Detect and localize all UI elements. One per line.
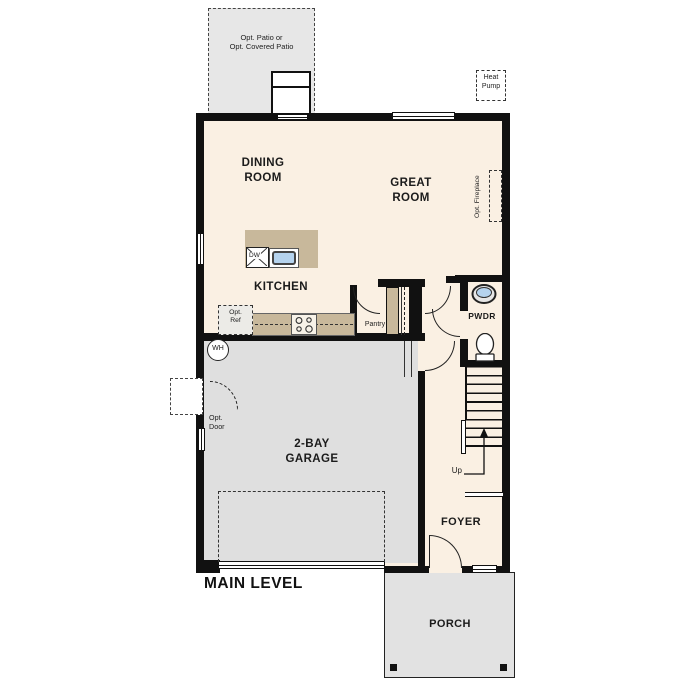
heat-pump-unit: Heat Pump bbox=[476, 70, 506, 101]
wall-closet-right bbox=[409, 279, 422, 335]
heat-pump-label-line2: Pump bbox=[482, 83, 500, 90]
wall-powder-left-upper bbox=[460, 275, 468, 311]
cooktop bbox=[291, 314, 317, 335]
dining-room-label-line1: DINING bbox=[242, 157, 285, 169]
opt-ref-label-line1: Opt. bbox=[229, 309, 242, 316]
optional-door-label: Opt. Door bbox=[209, 413, 239, 431]
chimney-divider bbox=[273, 86, 309, 88]
heat-pump-label: Heat Pump bbox=[477, 74, 505, 92]
closet-shelf bbox=[386, 287, 399, 335]
closet-bifold-dashed bbox=[404, 287, 405, 335]
floor-plan: Opt. Patio or Opt. Covered Patio Heat Pu… bbox=[0, 0, 687, 687]
window-dining bbox=[197, 233, 204, 265]
garage-label-line1: 2-BAY bbox=[294, 438, 329, 450]
kitchen-label: KITCHEN bbox=[236, 280, 326, 295]
heat-pump-label-line1: Heat bbox=[484, 74, 499, 81]
garage-label-line2: GARAGE bbox=[286, 453, 339, 465]
window-foyer-sidelite bbox=[472, 565, 497, 573]
garage-entry-opening bbox=[418, 341, 425, 371]
optional-patio-label-line1: Opt. Patio or bbox=[240, 33, 282, 42]
toilet-icon bbox=[474, 333, 496, 362]
opt-ref-label-line2: Ref bbox=[230, 317, 241, 324]
great-room-label: GREAT ROOM bbox=[366, 176, 456, 206]
opt-door-label-line1: Opt. bbox=[209, 413, 223, 422]
dining-room-label-line2: ROOM bbox=[244, 172, 281, 184]
optional-door-outline bbox=[170, 378, 203, 415]
optional-refrigerator-label: Opt. Ref bbox=[219, 309, 252, 326]
optional-patio-label: Opt. Patio or Opt. Covered Patio bbox=[208, 33, 315, 52]
water-heater: WH bbox=[207, 339, 229, 361]
dining-room-label: DINING ROOM bbox=[218, 156, 308, 186]
powder-sink-icon bbox=[471, 284, 497, 304]
closet-track-line bbox=[401, 287, 402, 335]
dishwasher-box: DW bbox=[246, 247, 269, 268]
opt-door-label-line2: Door bbox=[209, 422, 225, 431]
optional-fireplace-label: Opt. Fireplace bbox=[474, 164, 486, 230]
stairs-landing-edge bbox=[465, 492, 503, 497]
garage-nook-line-right bbox=[411, 341, 412, 377]
window-great-room bbox=[392, 112, 455, 120]
porch-label: PORCH bbox=[405, 617, 495, 632]
optional-patio-label-line2: Opt. Covered Patio bbox=[230, 42, 294, 51]
garage-door-swing-outline bbox=[218, 491, 385, 562]
porch-post-left bbox=[390, 664, 397, 671]
island-sink-basin bbox=[272, 251, 296, 265]
garage-overhead-door bbox=[218, 561, 385, 569]
porch-post-right bbox=[500, 664, 507, 671]
chimney bbox=[271, 71, 311, 116]
window-garage bbox=[198, 428, 205, 451]
great-room-label-line1: GREAT bbox=[390, 177, 431, 189]
garage-label: 2-BAY GARAGE bbox=[267, 437, 357, 467]
wall-bottom-garage-stub bbox=[196, 560, 220, 573]
optional-fireplace-box bbox=[489, 170, 502, 222]
wall-top bbox=[196, 113, 510, 121]
garage-nook-line-left bbox=[404, 341, 405, 377]
wall-right bbox=[502, 113, 510, 573]
foyer-label: FOYER bbox=[416, 515, 506, 530]
water-heater-label: WH bbox=[208, 345, 228, 352]
powder-room-label: PWDR bbox=[462, 311, 502, 321]
dishwasher-label: DW bbox=[248, 252, 261, 259]
plan-title: MAIN LEVEL bbox=[204, 575, 303, 593]
stairs-left-edge bbox=[465, 366, 467, 420]
wall-left bbox=[196, 113, 204, 573]
great-room-label-line2: ROOM bbox=[392, 192, 429, 204]
cooktop-burners-icon bbox=[292, 315, 316, 334]
window-patio-door bbox=[277, 114, 308, 120]
stairs-up-arrow-icon bbox=[460, 427, 490, 477]
optional-refrigerator: Opt. Ref bbox=[218, 305, 253, 335]
